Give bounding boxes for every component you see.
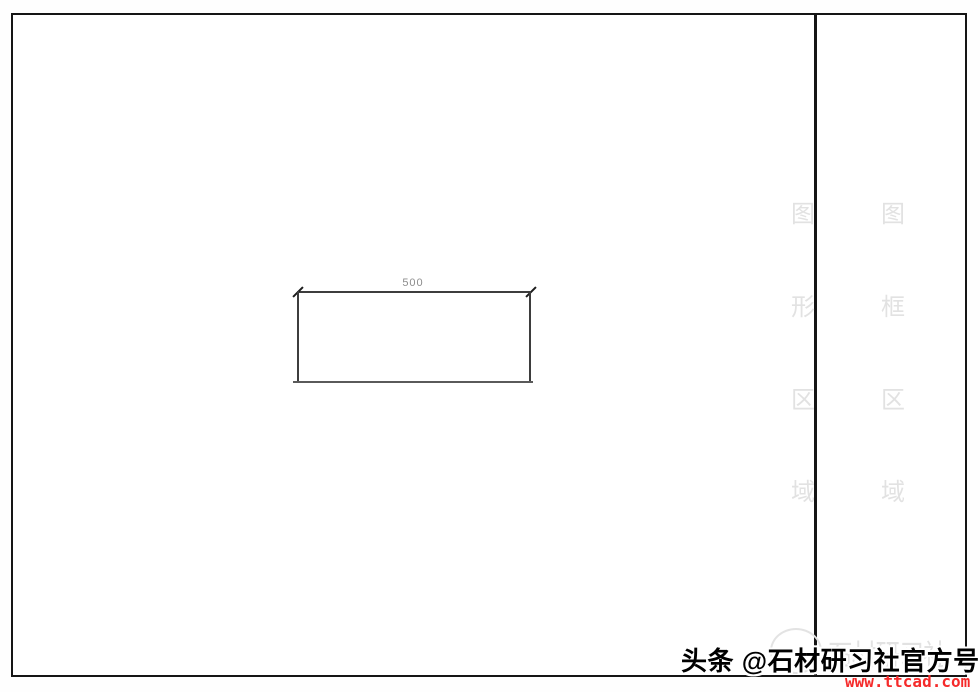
- sheet-border: [11, 13, 967, 677]
- website-url: www.ttcad.com: [845, 672, 970, 691]
- cad-drawing-sheet: 图 形 区 域 图 框 区 域 500 石材研习社 头条 @石材研习社官方号 w…: [0, 0, 980, 692]
- area-divider-line: [814, 13, 817, 677]
- rectangle-bottom-edge: [293, 381, 533, 383]
- rectangle-left-edge: [297, 291, 299, 382]
- watermark-char: 区: [878, 380, 908, 415]
- watermark-char: 框: [878, 287, 908, 322]
- dimension-line: [297, 291, 530, 293]
- watermark-char: 形: [788, 287, 818, 322]
- watermark-char: 域: [878, 472, 908, 507]
- watermark-char: 域: [788, 472, 818, 507]
- watermark-char: 图: [788, 194, 818, 229]
- dimension-value-label: 500: [373, 277, 453, 289]
- rectangle-right-edge: [529, 291, 531, 382]
- watermark-char: 区: [788, 380, 818, 415]
- watermark-char: 图: [878, 194, 908, 229]
